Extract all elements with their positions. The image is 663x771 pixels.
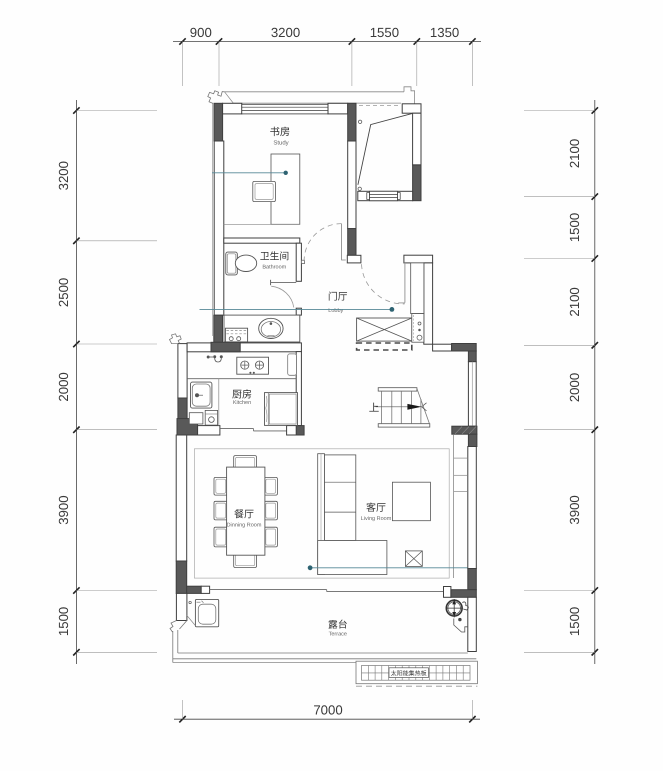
svg-text:1500: 1500 [567,213,582,242]
svg-text:Kitchen: Kitchen [233,400,251,406]
svg-text:1500: 1500 [56,607,71,636]
svg-text:2000: 2000 [567,373,582,402]
svg-text:3200: 3200 [56,161,71,190]
svg-text:1350: 1350 [430,25,459,40]
svg-text:2100: 2100 [567,139,582,168]
svg-text:Lobby: Lobby [328,308,343,314]
svg-text:2500: 2500 [56,278,71,307]
svg-text:Dinning Room: Dinning Room [227,523,262,529]
svg-text:2000: 2000 [56,372,71,401]
svg-text:Terrace: Terrace [329,632,347,638]
svg-text:Bathroom: Bathroom [262,264,286,270]
svg-text:1550: 1550 [370,25,399,40]
svg-text:3200: 3200 [271,25,300,40]
svg-text:1500: 1500 [567,607,582,636]
svg-text:2100: 2100 [567,287,582,316]
svg-text:3900: 3900 [56,495,71,524]
svg-text:3900: 3900 [567,495,582,524]
svg-text:7000: 7000 [313,702,342,717]
svg-text:Living Room: Living Room [361,516,392,522]
svg-text:Study: Study [273,139,288,146]
svg-text:900: 900 [190,25,212,40]
